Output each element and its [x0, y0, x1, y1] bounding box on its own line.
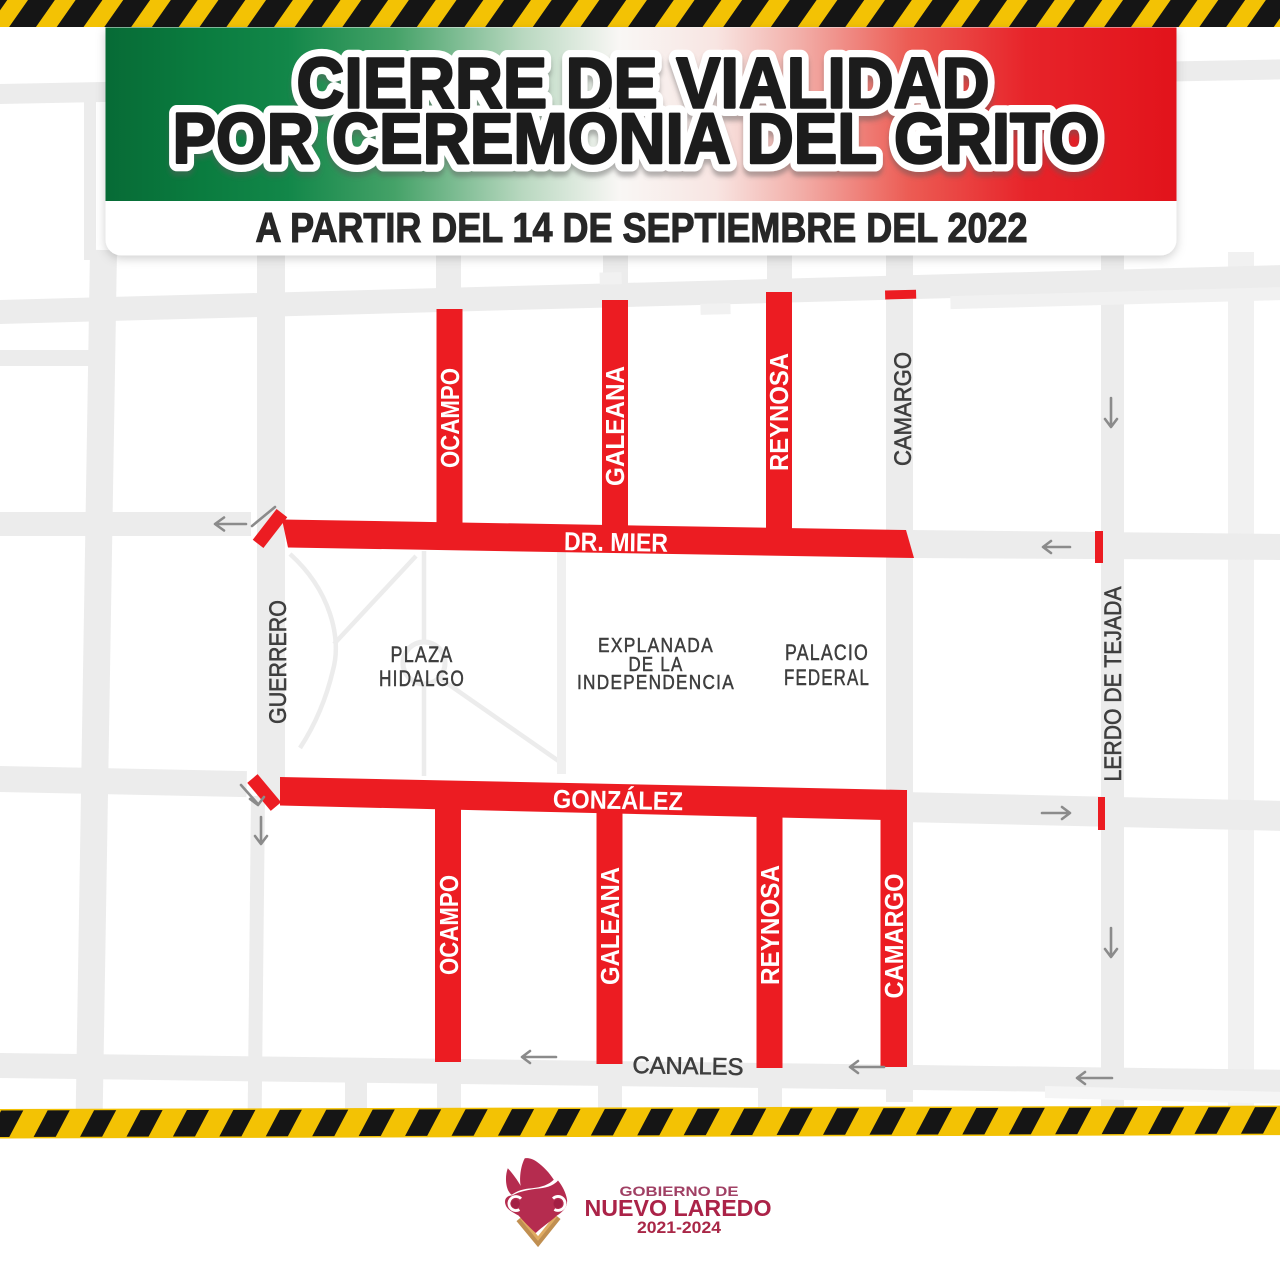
svg-text:CAMARGO: CAMARGO: [879, 874, 909, 999]
svg-text:DR. MIER: DR. MIER: [564, 526, 669, 558]
svg-text:2021-2024: 2021-2024: [637, 1218, 722, 1237]
svg-text:PLAZA: PLAZA: [391, 642, 454, 667]
svg-text:LERDO DE TEJADA: LERDO DE TEJADA: [1100, 587, 1127, 782]
svg-text:GONZÁLEZ: GONZÁLEZ: [553, 784, 684, 816]
svg-text:GALEANA: GALEANA: [595, 867, 625, 985]
svg-text:CANALES: CANALES: [632, 1052, 743, 1081]
svg-text:CAMARGO: CAMARGO: [890, 352, 917, 466]
svg-text:REYNOSA: REYNOSA: [764, 353, 794, 471]
svg-text:OCAMPO: OCAMPO: [435, 368, 465, 468]
svg-text:REYNOSA: REYNOSA: [755, 865, 785, 985]
svg-text:PALACIO: PALACIO: [785, 640, 869, 665]
svg-text:A PARTIR DEL 14 DE SEPTIEMBRE: A PARTIR DEL 14 DE SEPTIEMBRE DEL 2022: [256, 204, 1028, 251]
svg-text:OCAMPO: OCAMPO: [434, 875, 464, 975]
svg-text:POR CEREMONIA DEL GRITO: POR CEREMONIA DEL GRITO: [173, 99, 1100, 179]
svg-text:GUERRERO: GUERRERO: [265, 600, 292, 724]
svg-text:FEDERAL: FEDERAL: [784, 665, 870, 690]
svg-text:INDEPENDENCIA: INDEPENDENCIA: [577, 672, 735, 694]
svg-text:HIDALGO: HIDALGO: [379, 666, 465, 691]
svg-text:GALEANA: GALEANA: [600, 366, 630, 486]
